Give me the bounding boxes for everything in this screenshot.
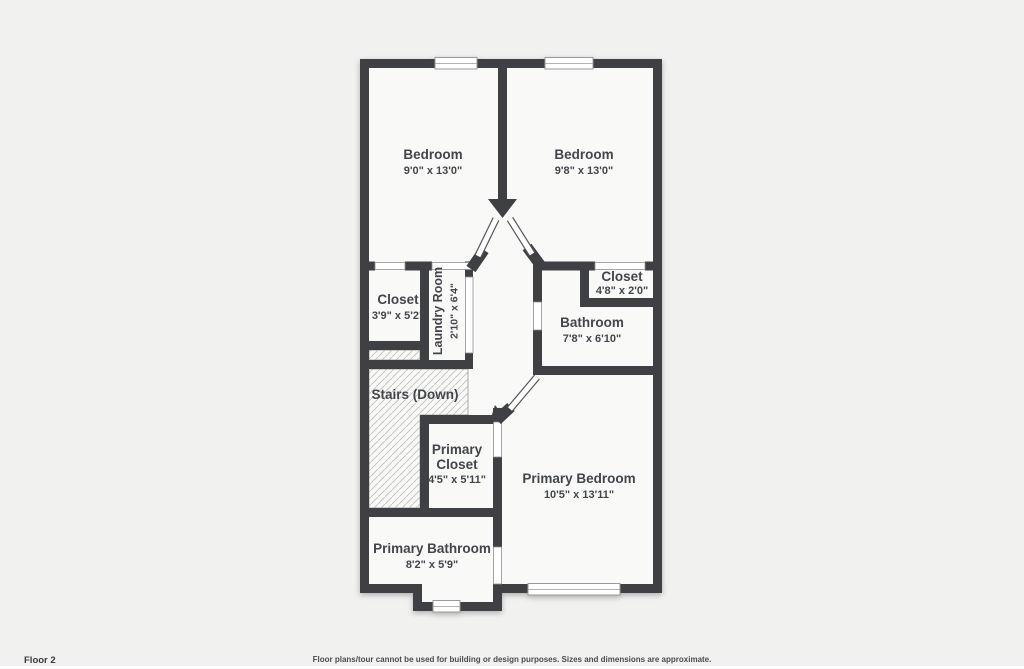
wall-segment xyxy=(465,352,473,369)
wall-segment xyxy=(360,508,502,517)
room-dims-primary-closet: 4'5" x 5'11" xyxy=(428,474,486,486)
door-marker-bathroom xyxy=(534,302,542,330)
wall-segment xyxy=(493,457,502,547)
wall-segment xyxy=(360,341,429,350)
wall-bedroom-divider xyxy=(498,68,507,201)
room-label-stairs: Stairs (Down) xyxy=(371,387,458,402)
wall-segment xyxy=(645,262,653,271)
wall-segment xyxy=(360,59,662,68)
room-label-primary-closet-1: Primary xyxy=(432,442,483,457)
room-dims-laundry: 2'10" x 6'4" xyxy=(449,283,461,339)
room-label-laundry: Laundry Room xyxy=(431,267,445,355)
door-marker-laundry-side xyxy=(466,277,474,353)
room-label-closet2: Closet xyxy=(601,269,643,284)
room-label-bedroom2: Bedroom xyxy=(554,147,613,162)
room-dims-bedroom1: 9'0" x 13'0" xyxy=(404,165,462,177)
floor-plan: Bedroom 9'0" x 13'0" Bedroom 9'8" x 13'0… xyxy=(360,58,662,613)
room-label-closet1: Closet xyxy=(377,292,419,307)
wall-segment xyxy=(542,262,583,271)
wall-segment xyxy=(533,366,662,375)
wall-segment xyxy=(360,584,418,593)
wall-segment xyxy=(360,262,375,271)
wall-segment xyxy=(420,415,429,517)
room-dims-closet2: 4'8" x 2'0" xyxy=(596,285,648,297)
room-label-primary-bathroom: Primary Bathroom xyxy=(373,541,491,556)
room-label-primary-bedroom: Primary Bedroom xyxy=(522,471,635,486)
footer: Floor 2 Floor plans/tour cannot be used … xyxy=(0,655,1024,669)
room-dims-closet1: 3'9" x 5'2" xyxy=(372,310,424,322)
wall-segment xyxy=(653,59,662,593)
room-dims-primary-bedroom: 10'5" x 13'11" xyxy=(544,489,614,501)
door-marker-primary-closet xyxy=(494,422,502,457)
floor-label: Floor 2 xyxy=(24,655,56,666)
room-dims-bathroom: 7'8" x 6'10" xyxy=(563,333,621,345)
wall-segment xyxy=(580,298,662,307)
wall-segment xyxy=(360,360,473,369)
door-marker-primary-bathroom xyxy=(494,547,502,584)
room-label-primary-closet-2: Closet xyxy=(436,457,478,472)
room-label-bedroom1: Bedroom xyxy=(403,147,462,162)
room-label-bathroom: Bathroom xyxy=(560,315,624,330)
room-dims-primary-bathroom: 8'2" x 5'9" xyxy=(406,559,458,571)
door-marker-closet1 xyxy=(375,263,405,270)
floor-plan-canvas: Bedroom 9'0" x 13'0" Bedroom 9'8" x 13'0… xyxy=(0,0,1024,669)
room-dims-bedroom2: 9'8" x 13'0" xyxy=(555,165,613,177)
stairs-hatch-strip xyxy=(369,350,420,360)
disclaimer-text: Floor plans/tour cannot be used for buil… xyxy=(313,655,712,664)
